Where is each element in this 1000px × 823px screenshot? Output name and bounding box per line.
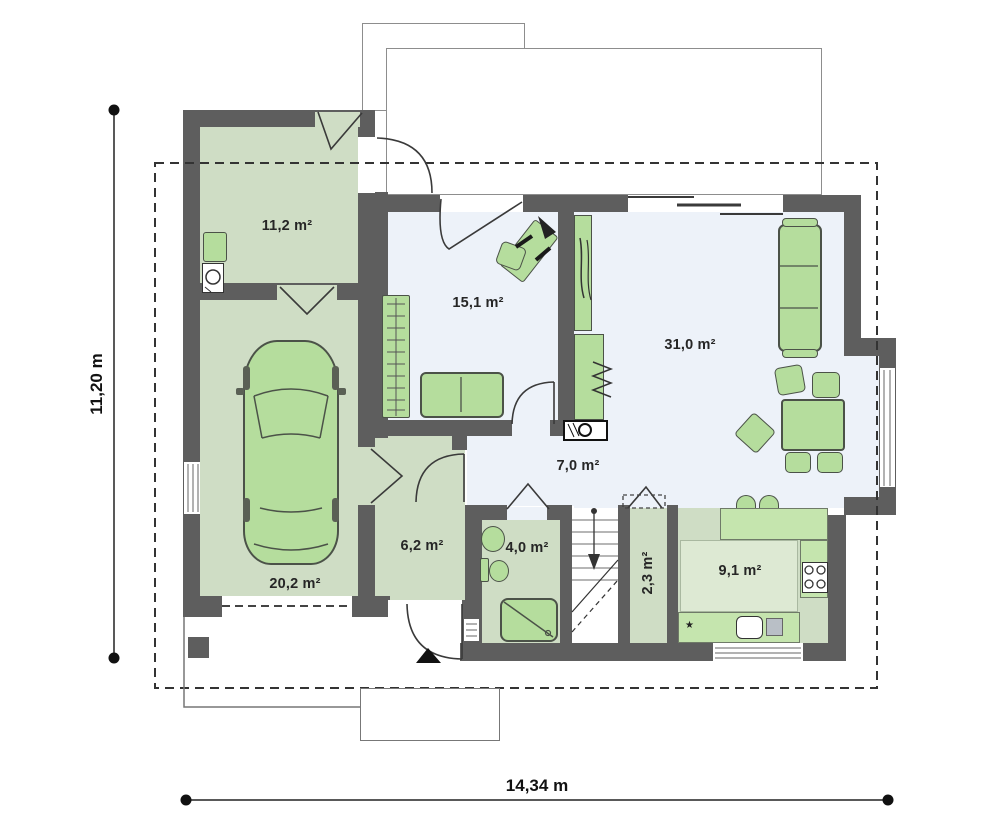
wall-right-upper: [844, 195, 861, 338]
window-garage-left: [184, 462, 200, 514]
wall-left-exterior: [183, 110, 200, 617]
floor-plan-canvas: ★: [0, 0, 1000, 823]
room-label-garage: 20,2 m²: [269, 576, 320, 592]
driveway-outline: [184, 617, 360, 707]
divider-shelf-lower: [574, 334, 604, 420]
room-label-kitchen: 9,1 m²: [718, 563, 761, 579]
wall-garage-south-right: [352, 596, 390, 617]
dishwasher: [766, 618, 783, 636]
wall-bathroom-top-b: [547, 505, 560, 520]
stove: [802, 562, 828, 593]
room-label-living: 31,0 m²: [664, 337, 715, 353]
toilet-bowl: [489, 560, 509, 582]
room-label-bathroom: 4,0 m²: [505, 540, 548, 556]
living-sofa-armrest-bottom: [782, 349, 818, 358]
kitchen-counter-peninsula: [720, 508, 828, 540]
wall-bedroom-living-divider: [558, 212, 574, 422]
entrance-triangle-marker: [416, 648, 441, 663]
wardrobe: [382, 295, 410, 418]
shower: [500, 598, 558, 642]
bar-stool-1: [736, 495, 756, 508]
washing-machine: [202, 263, 224, 293]
room-vestibule-floor: [375, 436, 465, 601]
room-label-utility: 11,2 m²: [262, 218, 313, 234]
porch-pillar: [188, 637, 209, 658]
room-label-bedroom: 15,1 m²: [452, 295, 503, 311]
dimension-label-height: 11,20 m: [87, 353, 107, 414]
opening-bedroom-hall-door: [512, 422, 550, 436]
opening-front-door: [388, 600, 462, 617]
fireplace: [563, 420, 608, 441]
opening-living-sliding-door: [628, 195, 783, 212]
opening-bedroom-top-door: [440, 195, 523, 212]
wall-stairs-right: [618, 505, 630, 645]
wall-bedroom-bottom: [372, 420, 512, 436]
divider-shelf-upper: [574, 215, 592, 331]
boiler: [203, 232, 227, 262]
wall-pantry-right: [667, 505, 678, 645]
stairs-floor: [572, 508, 618, 643]
room-label-vestibule: 6,2 m²: [400, 538, 443, 554]
room-label-hall: 7,0 m²: [556, 458, 599, 474]
opening-garage-utility-door: [277, 285, 337, 300]
dining-table: [781, 399, 845, 451]
bar-stool-2: [759, 495, 779, 508]
entrance-porch-outline: [360, 688, 500, 741]
dimension-label-width: 14,34 m: [506, 776, 568, 796]
wall-vestibule-hall-stub: [452, 436, 467, 450]
wall-bay-bottom: [844, 497, 896, 515]
wall-right-lower: [828, 515, 846, 661]
opening-porch-entry-door: [358, 137, 375, 193]
dining-chair-1: [774, 364, 806, 396]
opening-utility-top-door: [315, 112, 360, 127]
room-label-pantry: 2,3 m²: [640, 551, 656, 594]
living-sofa: [778, 224, 822, 352]
dining-chair-4: [817, 452, 843, 473]
wall-bathroom-right: [560, 505, 572, 645]
window-bay: [880, 368, 895, 487]
opening-garage-vestibule-door: [358, 447, 375, 505]
kitchen-star-symbol: ★: [685, 621, 694, 631]
roof-overhang-outline-large: [386, 48, 822, 195]
kitchen-sink: [736, 616, 763, 639]
bay-window-floor: [844, 356, 879, 497]
wall-garage-south-left: [183, 596, 222, 617]
window-kitchen-south: [713, 643, 803, 661]
bathroom-sink: [481, 526, 505, 552]
toilet-tank: [480, 558, 489, 582]
wall-bathroom-top-a: [480, 505, 507, 520]
dining-chair-3: [785, 452, 811, 473]
opening-garage-door: [222, 596, 352, 617]
living-sofa-armrest-top: [782, 218, 818, 227]
opening-bathroom-door: [507, 507, 547, 520]
window-connector: [464, 619, 479, 641]
bedroom-sofa: [420, 372, 504, 418]
dining-chair-2: [812, 372, 840, 398]
car: [243, 340, 339, 565]
